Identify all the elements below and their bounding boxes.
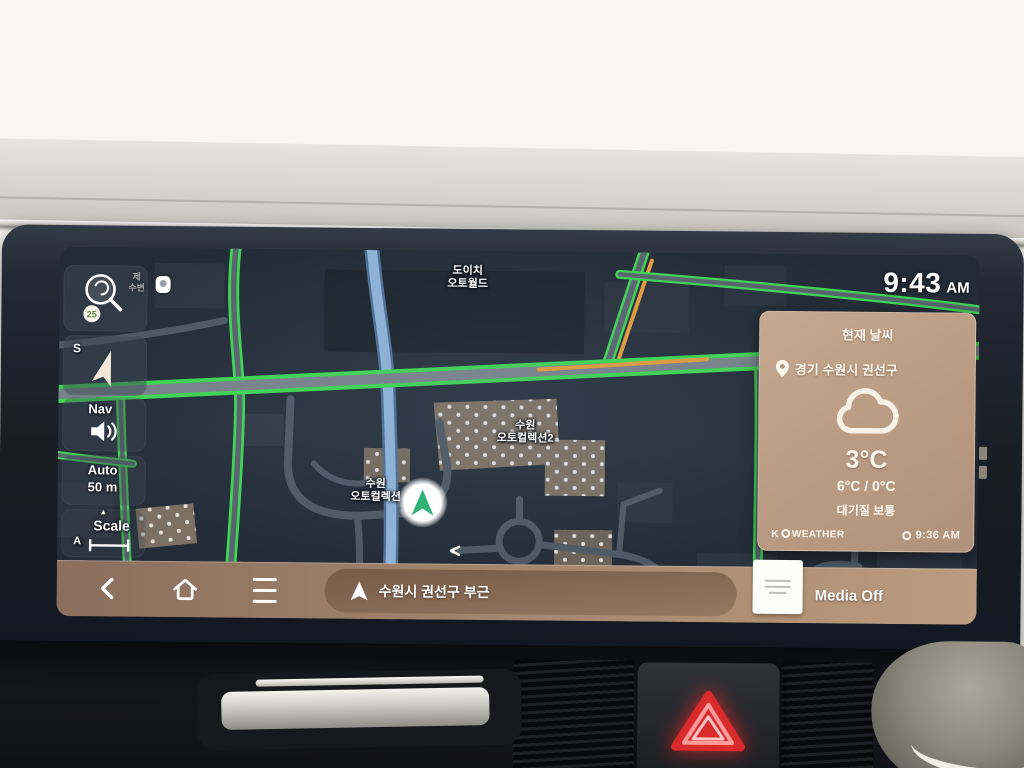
media-status[interactable]: Media Off — [814, 567, 883, 624]
weather-widget[interactable]: 현재 날씨 경기 수원시 권선구 3°C 6°C / 0°C 대기질 보통 — [757, 311, 976, 553]
media-tile[interactable] — [752, 560, 803, 614]
lower-dashboard — [0, 640, 1024, 768]
scale-marker-a: A — [73, 535, 81, 547]
compass-heading-label: S — [73, 341, 81, 355]
scale-arrow: ▲ — [99, 507, 107, 516]
scale-ruler-icon — [85, 537, 133, 553]
gs25-badge: 25 — [83, 305, 100, 322]
hazard-triangle-icon — [669, 687, 748, 756]
weather-temperature: 3°C — [759, 445, 974, 476]
navigation-arrow-icon — [409, 487, 435, 517]
screen-side-tab — [979, 447, 987, 460]
speaker-icon — [88, 418, 120, 444]
back-chevron-icon — [99, 576, 115, 600]
nav-volume-button[interactable]: Nav — [62, 397, 147, 452]
weather-high-low: 6°C / 0°C — [759, 477, 974, 495]
compass-needle-icon — [85, 344, 126, 393]
menu-icon — [253, 577, 277, 580]
time-meridiem: AM — [946, 279, 969, 296]
bottom-navigation-bar: 수원시 권선구 부근 Media Off — [56, 560, 976, 625]
compass-button[interactable]: S — [63, 335, 148, 396]
air-vent-right — [781, 662, 874, 768]
weather-location: 경기 수원시 권선구 — [795, 359, 898, 379]
cloudy-icon — [828, 386, 906, 439]
gs25-search-icon — [73, 267, 138, 326]
menu-button[interactable] — [242, 562, 287, 618]
status-clock: 9:43AM — [883, 267, 970, 300]
weather-air-quality: 대기질 보통 — [758, 501, 973, 520]
map-poi-icon — [156, 276, 171, 293]
gs25-search-button[interactable]: 25 — [63, 265, 148, 332]
weather-provider: KWEATHER — [771, 528, 844, 540]
infotainment-bezel: 도이치오토월드 수원오토컬렉션2 수원오토컬렉션 제수변 — [0, 224, 1024, 664]
back-button[interactable] — [86, 560, 127, 616]
navigation-screen: 도이치오토월드 수원오토컬렉션2 수원오토컬렉션 제수변 — [56, 247, 979, 625]
weather-title: 현재 날씨 — [760, 324, 975, 345]
current-position-marker — [397, 477, 447, 527]
destination-text: 수원시 권선구 부근 — [379, 581, 490, 602]
weather-updated: 9:36 AM — [903, 529, 961, 542]
media-tile-placeholder — [765, 580, 791, 582]
scale-button[interactable]: ▲ A Scale — [61, 509, 145, 558]
map-label-deutsch-autoworld: 도이치오토월드 — [418, 264, 518, 291]
zoom-auto-button[interactable]: Auto 50 m — [62, 455, 146, 506]
time-value: 9:43 — [883, 267, 941, 299]
zoom-mode-label: Auto — [88, 462, 118, 477]
map-label-suwon-autocollection2: 수원오토컬렉션2 — [475, 419, 575, 446]
console-chrome-trim — [221, 687, 490, 730]
scale-label: Scale — [93, 517, 130, 533]
nav-volume-label: Nav — [88, 401, 112, 416]
home-button[interactable] — [162, 561, 207, 617]
zoom-scale-label: 50 m — [88, 479, 118, 494]
air-vent-left — [513, 659, 634, 768]
destination-arrow-icon — [351, 581, 368, 601]
hazard-light-button[interactable] — [637, 662, 780, 768]
dashboard-photo: 도이치오토월드 수원오토컬렉션2 수원오토컬렉션 제수변 — [0, 0, 1024, 768]
refresh-clock-icon — [903, 531, 912, 540]
destination-pill[interactable]: 수원시 권선구 부근 — [324, 569, 736, 617]
location-pin-icon — [776, 360, 789, 377]
screen-side-tab — [979, 466, 987, 479]
provider-globe-icon — [781, 528, 790, 537]
home-icon — [171, 577, 198, 602]
